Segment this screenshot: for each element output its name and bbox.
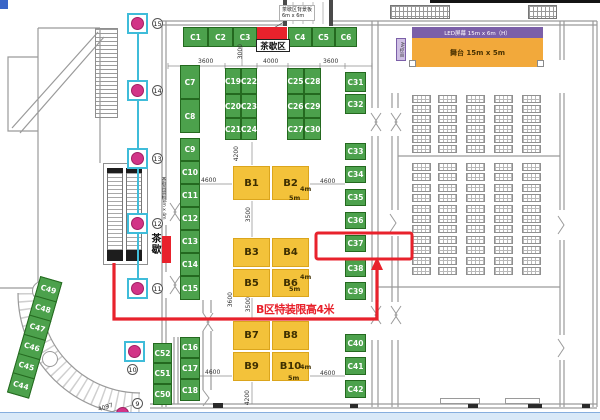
height-limit-note: B区特装限高4米 xyxy=(256,301,348,317)
marker-label-14: 14 xyxy=(152,85,163,96)
marker-dot xyxy=(131,152,144,165)
marker-label-10: 10 xyxy=(127,364,138,375)
marker-label-11: 11 xyxy=(152,283,163,294)
marker-dot xyxy=(131,17,144,30)
marker-dot xyxy=(131,84,144,97)
marker-dot xyxy=(128,345,141,358)
window-bottom-strip xyxy=(0,412,600,420)
window-corner xyxy=(0,0,8,9)
marker-13 xyxy=(127,148,148,169)
marker-11 xyxy=(127,278,148,299)
marker-12 xyxy=(127,213,148,234)
highlight-rect-C37 xyxy=(316,233,412,259)
marker-15 xyxy=(127,13,148,34)
marker-dot xyxy=(131,217,144,230)
top-border-bar xyxy=(430,0,600,3)
marker-label-15: 15 xyxy=(152,18,163,29)
marker-10 xyxy=(124,341,145,362)
marker-14 xyxy=(127,80,148,101)
red-route-overlay xyxy=(0,0,600,420)
marker-label-13: 13 xyxy=(152,153,163,164)
marker-dot xyxy=(131,282,144,295)
exhibition-floor-plan: LED屏幕 15m x 6m（H） 舞台 15m x 5m AV控台 茶歇区 茶… xyxy=(0,0,600,420)
marker-label-12: 12 xyxy=(152,218,163,229)
marker-label-9: 9 xyxy=(132,398,143,409)
